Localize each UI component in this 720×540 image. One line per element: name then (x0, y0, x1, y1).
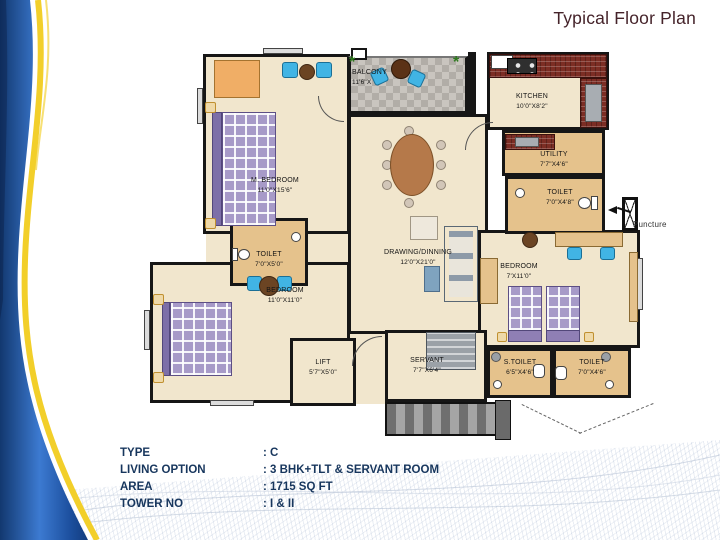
puncture-annotation: Puncture (633, 220, 693, 230)
wardrobe (480, 258, 498, 304)
dining-chair (382, 180, 392, 190)
bay-window-seat (629, 252, 638, 322)
spec-label: AREA (120, 481, 153, 493)
side-table (153, 372, 164, 383)
wash-basin (605, 380, 614, 389)
chair (282, 62, 298, 78)
spec-value: : 1715 SQ FT (263, 481, 333, 493)
bed-blanket (546, 330, 580, 342)
spec-value: : I & II (263, 498, 294, 510)
study-desk (555, 232, 623, 247)
stairs (385, 402, 505, 436)
bed-headboard (212, 112, 222, 226)
spec-label: LIVING OPTION (120, 464, 206, 476)
dining-chair (382, 140, 392, 150)
arrow-icon (608, 206, 617, 214)
side-table (497, 332, 507, 342)
swoosh-decoration (0, 0, 110, 540)
room-label-s-toilet: S.TOILET 6'5"X4'6" (487, 358, 553, 378)
window (210, 400, 254, 406)
coffee-table (424, 266, 440, 292)
dining-chair (436, 140, 446, 150)
room-label-lift: LIFT 5'7"X5'0" (292, 358, 354, 378)
room-label-bedroom-left: BEDROOM 11'0"X11'0" (235, 286, 335, 306)
armchair (410, 216, 438, 240)
slide-title: Typical Floor Plan (553, 8, 696, 29)
stair-landing (495, 400, 511, 440)
spec-row-tower-no: TOWER NO : I & II (120, 498, 640, 515)
window-seat (214, 60, 260, 98)
slide: Typical Floor Plan TYPE : C LIVING OPTIO… (0, 0, 720, 540)
spec-label: TYPE (120, 447, 150, 459)
stove (507, 58, 537, 74)
room-label-toilet-top-right: TOILET 7'0"X4'8" (520, 188, 600, 208)
wash-basin (291, 232, 301, 242)
sink (585, 84, 602, 122)
entry-dash-line (522, 404, 582, 434)
spec-row-type: TYPE : C (120, 447, 640, 464)
side-table (584, 332, 594, 342)
window (144, 310, 150, 350)
dining-table (390, 134, 434, 196)
room-label-toilet-bottom-right: TOILET 7'0"X4'6" (553, 358, 631, 378)
room-label-toilet-mid-left: TOILET 7'0"X5'0" (230, 250, 308, 270)
side-table (205, 218, 216, 229)
room-label-drawing-dining: DRAWING/DINNING 12'0"X21'0" (349, 248, 487, 268)
room-label-kitchen: KITCHEN 10'0"X8'2" (487, 92, 577, 112)
double-bed (222, 112, 276, 226)
wall-segment (468, 52, 476, 114)
spec-label: TOWER NO (120, 498, 183, 510)
chair (600, 247, 615, 260)
plant-icon: * (453, 57, 459, 69)
round-table (299, 64, 315, 80)
spec-row-area: AREA : 1715 SQ FT (120, 481, 640, 498)
entry-dash-line (579, 403, 654, 434)
bed-headboard (162, 302, 170, 376)
dining-chair (436, 160, 446, 170)
room-label-m-bedroom: M. BEDROOM 11'0"X15'6" (205, 176, 345, 196)
wash-basin (493, 380, 502, 389)
spec-value: : C (263, 447, 278, 459)
room-label-balcony: BALCONY 11'6"X (352, 68, 416, 88)
chair (316, 62, 332, 78)
chair (567, 247, 582, 260)
pouf (522, 232, 538, 248)
side-table (205, 102, 216, 113)
dining-chair (436, 180, 446, 190)
window (263, 48, 303, 54)
room-label-utility: UTILITY 7'7"X4'6" (509, 150, 599, 170)
window (197, 88, 203, 124)
floor-plan: M. BEDROOM 11'0"X15'6" * * BALCONY 11'6"… (143, 48, 665, 440)
side-table (153, 294, 164, 305)
double-bed (170, 302, 232, 376)
spec-value: : 3 BHK+TLT & SERVANT ROOM (263, 464, 439, 476)
sink (515, 137, 539, 147)
spec-row-living-option: LIVING OPTION : 3 BHK+TLT & SERVANT ROOM (120, 464, 640, 481)
room-label-servant: SERVANT 7'7"X6'4" (387, 356, 467, 376)
dining-chair (404, 198, 414, 208)
bed-blanket (508, 330, 542, 342)
